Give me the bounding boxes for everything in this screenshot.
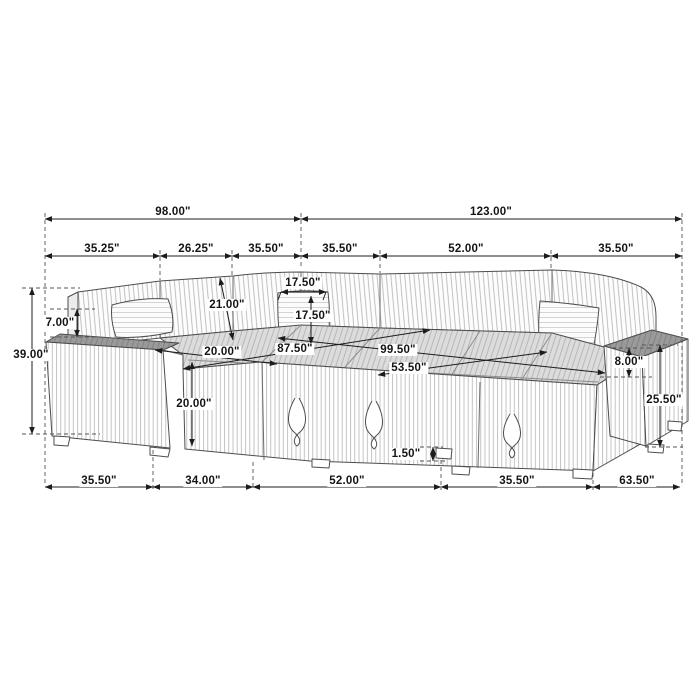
pillow-left [112,299,173,338]
dim-top-left-total: 98.00" [153,206,192,218]
sofa-illustration [46,270,688,479]
dim-bottom-seg-1: 35.50" [79,475,118,487]
dim-top-seg-3: 35.50" [246,243,285,255]
dim-back-above-arm: 7.00" [44,317,77,329]
dim-top-seg-5: 52.00" [446,243,485,255]
dim-top-seg-4: 35.50" [320,243,359,255]
dim-top-right-total: 123.00" [468,206,514,218]
dim-top-seg-1: 35.25" [82,243,121,255]
dim-seat-depth: 20.00" [202,346,241,358]
dimension-diagram-page: 98.00" 123.00" 35.25" 26.25" 35.50" 35.5… [0,0,700,700]
dim-bed-width: 53.50" [389,362,428,374]
dim-leg-height: 1.50" [390,448,423,460]
dim-bottom-seg-4: 35.50" [497,475,536,487]
dim-top-seg-6: 35.50" [596,243,635,255]
dim-right-arm-height: 25.50" [644,394,683,406]
dim-right-section-depth: 99.50" [378,344,417,356]
dim-bottom-seg-2: 34.00" [183,475,222,487]
dim-bottom-seg-3: 52.00" [327,475,366,487]
dim-left-chaise-depth: 87.50" [275,343,314,355]
dim-seat-height: 20.00" [174,398,213,410]
dim-overall-height: 39.00" [11,349,50,361]
dim-pillow-width: 17.50" [283,277,322,289]
dim-pillow-height: 17.50" [293,310,332,322]
dim-top-seg-2: 26.25" [176,243,215,255]
dim-bottom-seg-5: 63.50" [617,475,656,487]
dim-arm-above-seat: 8.00" [613,356,646,368]
dim-back-cushion-height: 21.00" [207,299,246,311]
sofa-dimension-diagram [0,0,700,700]
